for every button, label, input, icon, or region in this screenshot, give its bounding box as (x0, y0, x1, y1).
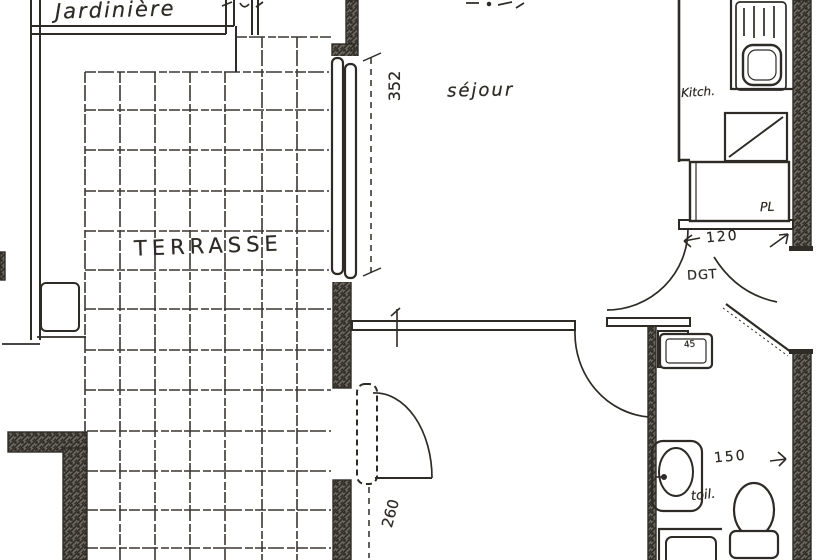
hallway-label: DGT (687, 268, 718, 283)
toilet-tank (730, 531, 778, 558)
kitchen-label: Kitch. (681, 85, 716, 99)
bathroom-door-leaf (726, 304, 791, 352)
bathtub-edge (659, 529, 722, 560)
bathroom-fixtures (652, 334, 786, 560)
kitchen-sink (743, 45, 781, 85)
entry-door-arc (575, 331, 649, 417)
bathroom-door-arc (714, 257, 777, 302)
dimension-352: 352 (387, 61, 403, 111)
dimension-45: 45 (684, 340, 696, 350)
door-leaf (357, 384, 377, 484)
scan-edge-mark (0, 252, 5, 280)
wall-bathroom-left (648, 326, 656, 560)
sink-basin (659, 448, 693, 496)
living-room-label: séjour (447, 81, 515, 100)
wall-terrace-bottom (333, 480, 351, 560)
wall-right-lower (793, 350, 811, 560)
dimension-line-352 (363, 53, 381, 276)
dgt-door-arc (607, 229, 688, 310)
wall-sejour-bottom (352, 321, 575, 330)
truncated-handwriting-marks (222, 2, 524, 8)
terrace-door (357, 384, 432, 558)
planter-label: Jardinière (55, 0, 176, 23)
wall-dgt-bottom (607, 318, 690, 326)
floorplan-scan: Jardinière TERRASSE séjour Kitch. DGT PL… (0, 0, 840, 560)
wall-right-upper (793, 0, 811, 250)
dimension-arrow-150 (770, 452, 786, 466)
drainboard-lines (744, 6, 774, 38)
wall-cap (332, 44, 354, 58)
kitchen-partition-wall (679, 0, 690, 162)
planter-outline (2, 0, 258, 344)
door-swing-arc (373, 393, 432, 478)
dimension-150: 150 (713, 449, 747, 466)
kitchen-fixtures (690, 0, 793, 221)
terrace-tile-grid (85, 26, 331, 560)
toilet-label: toil. (690, 488, 716, 503)
sliding-bay-door (329, 56, 359, 282)
wall-end-caps (789, 246, 813, 354)
bay-door-panel (332, 58, 343, 274)
closet-label: PL (760, 201, 775, 214)
stove-diagonal (729, 117, 783, 157)
dimension-120: 120 (705, 229, 739, 246)
toilet-bowl (734, 483, 774, 537)
bay-door-panel (345, 64, 356, 278)
wall-left-step-vert (63, 448, 87, 560)
bathtub-inner (666, 537, 716, 560)
wall-terrace-mid (333, 270, 351, 388)
terrace-label: TERRASSE (134, 233, 283, 259)
